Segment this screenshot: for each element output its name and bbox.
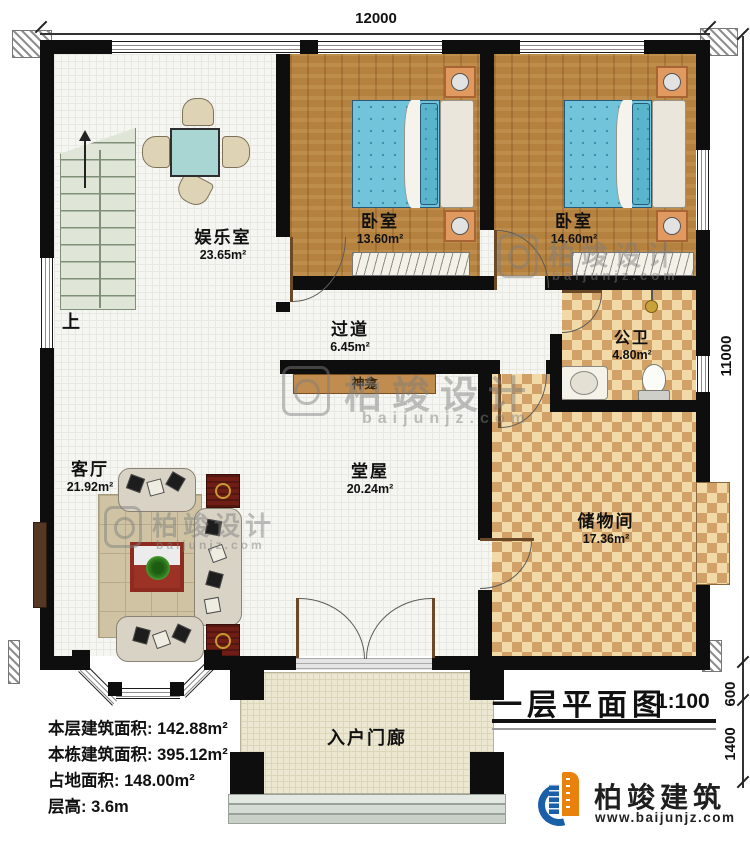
- porch-step: [228, 814, 506, 824]
- info-value: 148.00m²: [124, 772, 195, 790]
- bathroom-door-leaf: [562, 290, 602, 293]
- bed-blanket-fold: [616, 100, 632, 208]
- watermark-subtext: baijunjz.com: [156, 538, 265, 552]
- interior-wall-entertainment-bedroom1: [276, 54, 290, 237]
- bay-window-post: [108, 682, 122, 696]
- wall-section-hatch: [8, 640, 20, 684]
- exterior-wall-bottom: [504, 656, 710, 670]
- exterior-wall-left: [40, 40, 54, 258]
- room-label-storage: 储物间 17.36m²: [546, 512, 666, 546]
- info-row: 本层建筑面积: 142.88m²: [48, 716, 228, 742]
- game-table: [170, 128, 220, 177]
- stairs-arrow-head: [79, 130, 91, 141]
- bed-headboard: [440, 100, 474, 208]
- room-label-bathroom: 公卫 4.80m²: [572, 330, 692, 363]
- bay-window-post: [204, 650, 222, 670]
- brand-logo-icon: [538, 772, 590, 832]
- logo-building-orange: [562, 772, 579, 816]
- entry-door-left-leaf: [296, 598, 299, 658]
- bay-window-post: [170, 682, 184, 696]
- title-underline-thick: [492, 719, 716, 723]
- window: [41, 258, 53, 348]
- porch-step: [228, 794, 506, 804]
- right-dimension-label-600: 600: [722, 670, 738, 718]
- right-dimension-label-11000: 11000: [718, 326, 734, 386]
- chair: [222, 136, 250, 168]
- watermark-subtext: baijunjz.com: [552, 268, 679, 283]
- room-label-entertainment: 娱乐室 23.65m²: [163, 228, 283, 262]
- exterior-wall-top: [442, 40, 520, 54]
- watermark: 柏竣设计 baijunjz.com: [104, 502, 304, 558]
- window: [697, 150, 709, 230]
- end-table-ornament: [215, 633, 231, 649]
- info-row: 本栋建筑面积: 395.12m²: [48, 742, 228, 768]
- right-dimension-label-1400: 1400: [722, 718, 738, 770]
- exterior-wall-right: [696, 392, 710, 482]
- window: [697, 356, 709, 392]
- bed-pillow: [420, 103, 438, 205]
- brand-website: www.baijunjz.com: [595, 810, 736, 825]
- wardrobe: [352, 252, 470, 276]
- room-label-living: 客厅 21.92m²: [35, 460, 145, 494]
- entry-threshold: [296, 658, 432, 670]
- logo-building-orange-windows: [566, 778, 570, 810]
- stairs-direction-arrow: [84, 140, 86, 188]
- info-label: 本栋建筑面积:: [48, 746, 153, 764]
- watermark-logo-icon: [282, 366, 330, 416]
- bedroom2-door-leaf: [494, 230, 497, 290]
- info-row: 层高: 3.6m: [48, 794, 228, 820]
- area-info-panel: 本层建筑面积: 142.88m² 本栋建筑面积: 395.12m² 占地面积: …: [48, 716, 228, 820]
- watermark-logo-icon: [104, 506, 142, 548]
- porch-step: [228, 804, 506, 814]
- staircase-rail-line: [99, 150, 101, 308]
- bed-headboard: [652, 100, 686, 208]
- title-underline-thin: [492, 728, 716, 730]
- staircase: [60, 124, 136, 310]
- sofa-cushion: [204, 597, 221, 614]
- window: [112, 41, 300, 53]
- nightstand-lamp: [451, 73, 469, 91]
- watermark: 柏竣设计 baijunjz.com: [282, 364, 582, 428]
- exterior-wall-bottom: [432, 656, 470, 670]
- top-dimension-label: 12000: [340, 10, 412, 27]
- porch-column: [230, 752, 264, 794]
- exterior-wall-right: [696, 585, 710, 656]
- nightstand-lamp: [451, 217, 469, 235]
- interior-wall-bedroom1-bedroom2: [480, 54, 494, 230]
- ceiling-lamp: [645, 300, 658, 313]
- top-dimension-line: [40, 33, 710, 35]
- info-value: 142.88m²: [157, 720, 228, 738]
- chair: [182, 98, 214, 126]
- bed-blanket-fold: [404, 100, 420, 208]
- stairs-up-label: 上: [56, 312, 86, 333]
- potted-plant: [146, 556, 170, 580]
- logo-building-blue: [549, 784, 559, 814]
- info-value: 3.6m: [91, 798, 129, 816]
- watermark: 柏竣设计 baijunjz.com: [498, 230, 718, 288]
- info-label: 占地面积:: [48, 772, 120, 790]
- exterior-wall-right: [696, 40, 710, 150]
- entry-door-right-leaf: [432, 598, 435, 658]
- tv-cabinet: [33, 522, 47, 608]
- room-label-porch: 入户门廊: [297, 728, 437, 749]
- info-label: 层高:: [48, 798, 87, 816]
- storage-west-door-leaf: [480, 538, 534, 541]
- info-label: 本层建筑面积:: [48, 720, 153, 738]
- window: [520, 41, 644, 53]
- bedroom1-door-leaf: [290, 237, 293, 302]
- info-value: 395.12m²: [157, 746, 228, 764]
- window: [318, 41, 442, 53]
- info-row: 占地面积: 148.00m²: [48, 768, 228, 794]
- drawing-scale: 1:100: [656, 690, 710, 714]
- watermark-subtext: baijunjz.com: [362, 410, 531, 428]
- room-label-bedroom1: 卧室 13.60m²: [320, 212, 440, 246]
- storage-west-wall: [478, 590, 492, 656]
- exterior-wall-left: [40, 348, 54, 656]
- interior-wall-stub: [276, 302, 290, 312]
- drawing-title: 一层平面图: [492, 680, 667, 724]
- room-label-hall: 堂屋 20.24m²: [310, 462, 430, 496]
- bed-pillow: [632, 103, 650, 205]
- porch-column: [470, 752, 504, 794]
- exterior-wall-bottom: [264, 656, 296, 670]
- chair: [142, 136, 170, 168]
- room-label-hallway: 过道 6.45m²: [290, 320, 410, 354]
- storage-bay-bump: [696, 482, 730, 585]
- porch-column: [230, 656, 264, 700]
- right-dimension-line: [742, 36, 744, 788]
- bay-window-post: [72, 650, 90, 670]
- end-table-ornament: [215, 483, 231, 499]
- floor-plan-canvas: 12000 11000 600 1400 上: [0, 0, 750, 842]
- watermark-logo-icon: [498, 234, 538, 278]
- exterior-wall-top: [300, 40, 318, 54]
- nightstand-lamp: [663, 73, 681, 91]
